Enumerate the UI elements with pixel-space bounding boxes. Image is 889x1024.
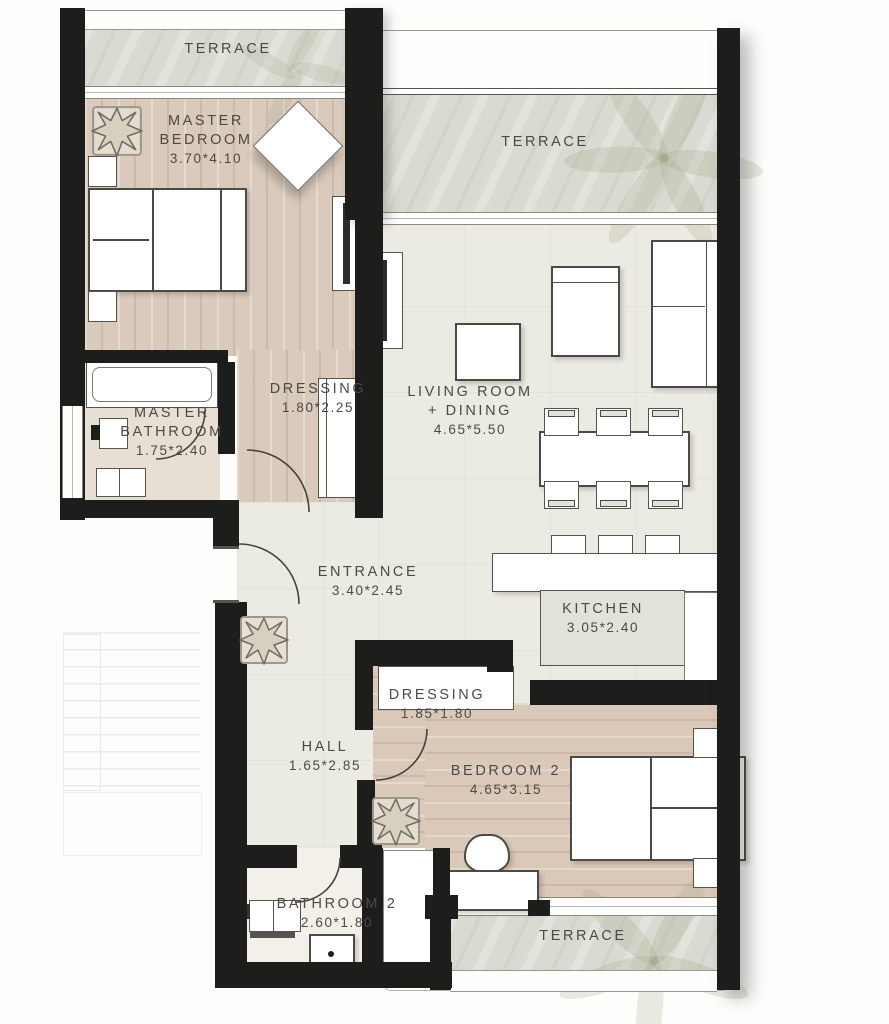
room-name: BEDROOM 2: [451, 762, 561, 781]
room-name: BEDROOM: [159, 131, 252, 150]
room-label-dressing-2: DRESSING 1.85*1.80: [389, 686, 486, 723]
room-name: BATHROOM: [120, 423, 224, 442]
sink-master: [96, 468, 146, 497]
sink-divider: [273, 901, 274, 931]
plant-icon: [238, 614, 290, 666]
window-living-room: [383, 212, 717, 225]
armchair-back-line: [553, 282, 618, 283]
chair-back: [600, 410, 627, 417]
plant-icon: [370, 795, 422, 847]
stairs-rail: [63, 634, 101, 791]
dining-chair: [596, 408, 631, 436]
bathtub-inner: [92, 367, 212, 402]
terrace2-railing: [383, 30, 717, 89]
room-dims: 4.65*5.50: [407, 421, 532, 439]
plant-icon: [90, 104, 144, 158]
dining-chair: [648, 408, 683, 436]
wall-bathroom2-bottom: [215, 962, 452, 988]
room-name: HALL: [289, 738, 361, 757]
room-name: TERRACE: [501, 133, 589, 152]
chair-back: [548, 410, 575, 417]
chair-back: [548, 500, 575, 507]
wall-bathroom2-top-left: [215, 845, 297, 868]
terrace2-railing-line: [383, 88, 717, 95]
room-label-terrace-bottom: TERRACE: [539, 927, 627, 946]
room-dims: 4.65*3.15: [451, 781, 561, 799]
chair-back: [652, 500, 679, 507]
room-dims: 1.75*2.40: [120, 442, 224, 460]
wall-kitchen-bottom: [530, 680, 717, 705]
dining-chair: [544, 481, 579, 509]
room-name: ENTRANCE: [318, 563, 419, 582]
sofa: [651, 240, 727, 388]
chair-back: [600, 500, 627, 507]
room-name: BATHROOM 2: [277, 895, 398, 914]
nightstand: [88, 291, 117, 322]
bed-pillow-split: [93, 239, 149, 241]
room-dims: 1.80*2.25: [270, 399, 367, 417]
room-dims: 3.05*2.40: [562, 619, 644, 637]
wall-dressing2-top: [373, 640, 489, 666]
room-label-entrance: ENTRANCE 3.40*2.45: [318, 563, 419, 600]
wall-hall-left-upper: [213, 500, 239, 548]
wall-window-stub: [528, 900, 550, 916]
toilet-tank: [91, 425, 100, 440]
door-jamb: [213, 600, 239, 603]
room-label-dressing-master: DRESSING 1.80*2.25: [270, 380, 367, 417]
room-label-master-bedroom: MASTER BEDROOM 3.70*4.10: [159, 112, 252, 168]
nightstand: [88, 156, 117, 187]
window-master-bedroom: [85, 86, 345, 99]
wall-terrace3-left: [430, 900, 451, 990]
room-dims: 2.60*1.80: [277, 914, 398, 932]
kitchen-island: [492, 553, 719, 592]
room-label-master-bathroom: MASTER BATHROOM 1.75*2.40: [120, 404, 224, 460]
room-name: + DINING: [407, 402, 532, 421]
toilet-bathroom2: [309, 934, 355, 964]
stairs-icon: [63, 632, 200, 792]
room-name: LIVING ROOM: [407, 383, 532, 402]
room-name: TERRACE: [539, 927, 627, 946]
window-line: [72, 406, 73, 498]
terrace1-railing: [85, 10, 345, 30]
window-line: [85, 92, 345, 93]
room-name: MASTER: [159, 112, 252, 131]
room-name: DRESSING: [270, 380, 367, 399]
dining-chair: [648, 481, 683, 509]
wall-hall-dressing2: [355, 640, 373, 730]
bathtub-master: [86, 361, 218, 408]
room-label-bedroom-2: BEDROOM 2 4.65*3.15: [451, 762, 561, 799]
wall-right-exterior: [717, 28, 740, 990]
sink-divider: [119, 469, 120, 496]
room-label-terrace-living: TERRACE: [501, 133, 589, 152]
room-label-hall: HALL 1.65*2.85: [289, 738, 361, 775]
room-name: DRESSING: [389, 686, 486, 705]
room-dims: 3.40*2.45: [318, 582, 419, 600]
desk-chair: [464, 834, 510, 874]
coffee-table: [455, 323, 521, 381]
sofa-seat-line: [653, 306, 705, 307]
toilet-drain-dot: [328, 951, 334, 957]
room-name: TERRACE: [184, 40, 272, 59]
floor-plan: TERRACE MASTER BEDROOM 3.70*4.10 TERRACE…: [0, 0, 889, 1024]
window-line: [383, 218, 717, 219]
stairs-landing: [63, 792, 202, 856]
wall-column-terrace1: [345, 8, 383, 220]
bed-pillow-split: [652, 807, 725, 809]
room-label-bathroom-2: BATHROOM 2 2.60*1.80: [277, 895, 398, 932]
room-label-living-dining: LIVING ROOM + DINING 4.65*5.50: [407, 383, 532, 439]
dining-table: [539, 431, 690, 487]
room-label-terrace-top-left: TERRACE: [184, 40, 272, 59]
room-label-kitchen: KITCHEN 3.05*2.40: [562, 600, 644, 637]
dining-chair: [544, 408, 579, 436]
room-dims: 3.70*4.10: [159, 150, 252, 168]
desk: [445, 870, 539, 911]
door-jamb: [213, 546, 239, 549]
armchair: [551, 266, 620, 357]
bed-master: [88, 188, 247, 292]
bath2-shelf: [250, 931, 295, 938]
window-master-bathroom: [62, 406, 83, 498]
room-dims: 1.85*1.80: [389, 705, 486, 723]
wall-dressing2-column: [487, 640, 513, 672]
wall-suite-bottom: [60, 500, 217, 518]
chair-back: [652, 410, 679, 417]
room-name: KITCHEN: [562, 600, 644, 619]
wall-bedroom-living-divider: [355, 215, 383, 518]
room-dims: 1.65*2.85: [289, 757, 361, 775]
bed-foot-line: [220, 190, 222, 290]
terrace3-railing: [450, 970, 717, 992]
dining-chair: [596, 481, 631, 509]
wall-bathroom-top: [78, 350, 228, 363]
room-name: MASTER: [120, 404, 224, 423]
